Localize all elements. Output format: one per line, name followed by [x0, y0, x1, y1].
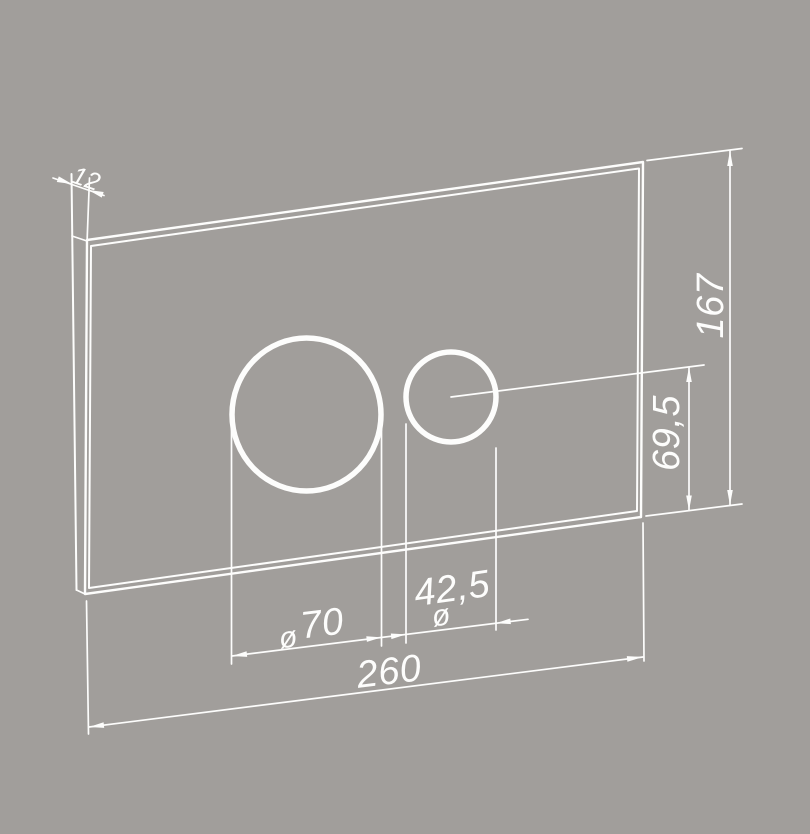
large-diameter-label: 70 — [298, 601, 346, 648]
height-label: 167 — [690, 272, 732, 338]
technical-drawing-canvas: 12 167 69,5 ø 70 42,5 ø 260 — [0, 0, 810, 834]
flush-plate-drawing: 12 167 69,5 ø 70 42,5 ø 260 — [0, 0, 810, 834]
offset-label: 69,5 — [646, 395, 688, 471]
width-label: 260 — [353, 647, 424, 697]
width-right-extension-line — [643, 523, 644, 661]
